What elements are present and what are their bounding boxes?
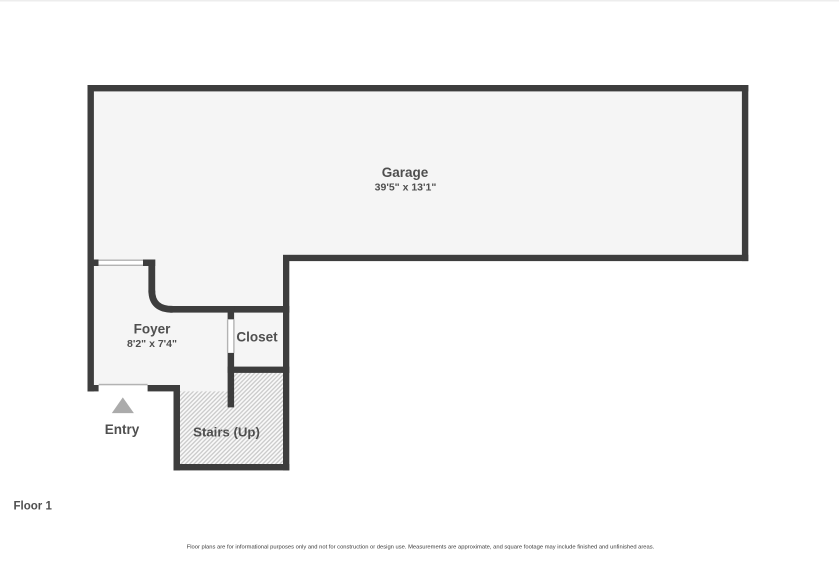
svg-text:Floor 1: Floor 1 xyxy=(14,501,53,513)
svg-text:Floor plans are for informatio: Floor plans are for informational purpos… xyxy=(187,545,655,551)
svg-text:Entry: Entry xyxy=(105,422,140,437)
svg-text:39'5" x 13'1": 39'5" x 13'1" xyxy=(375,182,437,194)
svg-text:Closet: Closet xyxy=(236,330,278,345)
svg-text:Foyer: Foyer xyxy=(134,322,172,337)
svg-text:Garage: Garage xyxy=(382,165,429,180)
svg-text:8'2" x 7'4": 8'2" x 7'4" xyxy=(127,338,177,350)
svg-text:Stairs (Up): Stairs (Up) xyxy=(193,425,260,440)
